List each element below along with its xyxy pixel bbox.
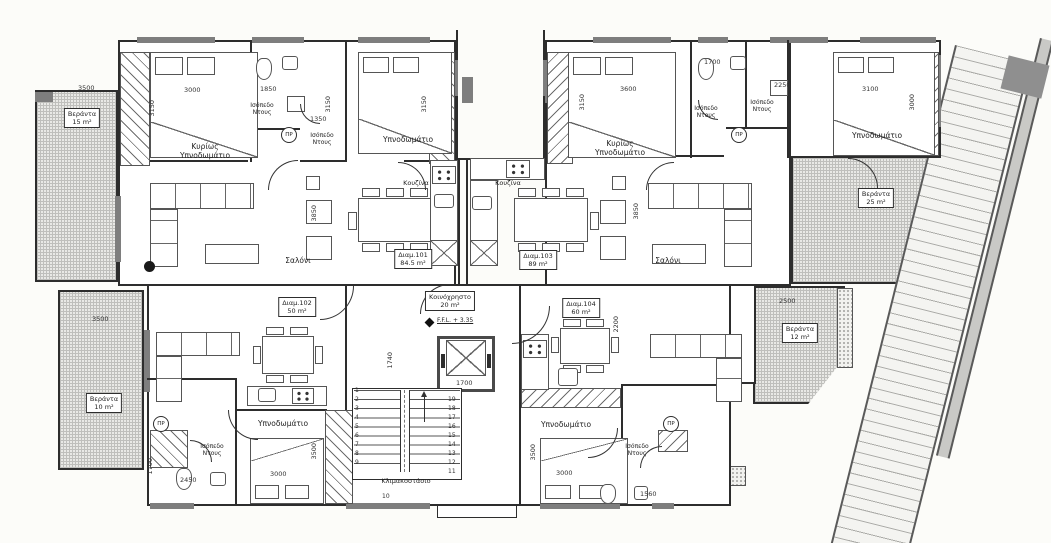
veranda-area: 25 m² — [862, 198, 890, 206]
room-label-bedroom-104: Υπνοδωμάτιο — [541, 421, 591, 430]
level-marker-label: F.F.L. + 3.35 — [437, 317, 473, 324]
dining-chair — [586, 319, 604, 327]
veranda-area: 12 m² — [786, 333, 814, 341]
window-bar — [860, 37, 936, 43]
dimension-label: 3150 — [420, 96, 428, 113]
stair-step-number: 3 — [355, 405, 365, 412]
pillow — [545, 485, 571, 499]
dimension-label: 3000 — [270, 470, 287, 478]
veranda-tag-top-left: Βεράντα 15 m² — [64, 108, 100, 128]
dimension-label: 3000 — [184, 86, 201, 94]
window-bar — [593, 37, 671, 43]
room-label-living-101: Σαλόνι — [285, 257, 310, 266]
stair-step-number: 11 — [448, 468, 458, 475]
shelf-102-bath — [150, 430, 188, 468]
staircase-label: Κλιμακοστάσιο — [381, 478, 430, 485]
dining-chair — [518, 188, 536, 197]
sofa-102-chaise — [156, 356, 182, 402]
pillow — [187, 57, 215, 75]
dining-chair — [611, 337, 619, 353]
room-label-bedroom-102: Υπνοδωμάτιο — [258, 420, 308, 429]
dimension-label: 1700 — [146, 458, 154, 475]
window-bar — [150, 503, 194, 509]
pr-shaft-103: ΠΡ — [731, 127, 747, 143]
dining-chair — [315, 346, 323, 364]
stove-104 — [523, 340, 547, 358]
apartment-name: Διαμ.102 — [282, 299, 312, 307]
boundary-block-top-left — [35, 92, 53, 102]
window-bar — [652, 503, 674, 509]
stair-step-number: 1 — [355, 387, 365, 394]
stair-step-number: 12 — [448, 459, 458, 466]
wall-102-bedroom-left — [235, 378, 237, 506]
apartment-tag-102: Διαμ.102 50 m² — [278, 297, 316, 317]
apartment-name: Διαμ.101 — [398, 251, 428, 259]
dimension-label: 3000 — [908, 94, 916, 111]
room-label-shower-102: Ισόπεδο Ντους — [200, 444, 223, 458]
dimension-label: 3500 — [78, 84, 95, 92]
sofa-101-chaise — [150, 209, 178, 267]
stair-step-number: 9 — [355, 459, 365, 466]
veranda-tag-bottom-right: Βεράντα 12 m² — [782, 323, 818, 343]
window-bar — [770, 37, 828, 43]
dimension-label: 2250 — [774, 81, 791, 89]
toilet-104 — [600, 484, 616, 504]
basin-103 — [730, 56, 746, 70]
dining-chair — [253, 346, 261, 364]
apartment-tag-101: Διαμ.101 84.5 m² — [394, 249, 432, 269]
pillow — [285, 485, 309, 499]
veranda-name: Βεράντα — [786, 325, 814, 333]
wall-103-bath-right — [787, 40, 789, 158]
dimension-label: 3150 — [324, 96, 332, 113]
stair-step-number: 18 — [448, 405, 458, 412]
entry-landing — [437, 505, 517, 518]
pr-label: ΠΡ — [157, 421, 164, 427]
stove-103 — [506, 160, 530, 178]
stair-step-number: 16 — [448, 423, 458, 430]
toilet-101 — [256, 58, 272, 80]
wall-103-bath-mid — [745, 40, 747, 128]
dimension-label: 3850 — [632, 203, 640, 220]
sofa-104-chaise — [716, 358, 742, 402]
apartment-area: 60 m² — [566, 308, 596, 316]
apartment-tag-103: Διαμ.103 89 m² — [519, 250, 557, 270]
party-wall-left — [458, 158, 460, 286]
common-name: Κοινόχρηστο — [429, 293, 471, 301]
dining-table-101 — [358, 198, 432, 242]
kitchen-sink-103 — [472, 196, 492, 210]
dining-chair — [566, 243, 584, 252]
dimension-label: 3600 — [620, 85, 637, 93]
sofa-101 — [150, 183, 254, 209]
apartment-area: 84.5 m² — [398, 259, 428, 267]
stair-step-number: 8 — [355, 450, 365, 457]
stair-step-number: 7 — [355, 441, 365, 448]
window-bar — [137, 37, 215, 43]
apartment-area: 50 m² — [282, 307, 312, 315]
armchair-103 — [600, 200, 626, 224]
wall-103-bath-left — [690, 40, 692, 158]
sofa-102 — [156, 332, 240, 356]
stove-101 — [432, 166, 456, 184]
stair-step-number: 14 — [448, 441, 458, 448]
stair-step-number: 15 — [448, 432, 458, 439]
dimension-label: 2500 — [779, 297, 796, 305]
dimension-label: 1740 — [386, 352, 394, 369]
dimension-label: 2200 — [612, 316, 620, 333]
stair-landing-number: 10 — [382, 493, 392, 500]
kitchen-sink-102 — [258, 388, 276, 402]
basin-102 — [210, 472, 226, 486]
veranda-name: Βεράντα — [862, 190, 890, 198]
pr-label: ΠΡ — [285, 132, 292, 138]
stair-stringer — [400, 390, 410, 472]
dimension-label: 3500 — [92, 315, 109, 323]
kitchen-sink-104 — [558, 368, 578, 386]
dimension-label: 3000 — [556, 469, 573, 477]
recess-column-left — [462, 77, 473, 103]
apartment-name: Διαμ.104 — [566, 300, 596, 308]
dining-table-103 — [514, 198, 588, 242]
party-wall-right — [466, 158, 468, 286]
dimension-label: 3500 — [529, 444, 537, 461]
pr-shaft-104: ΠΡ — [663, 416, 679, 432]
dimension-label: 1350 — [310, 115, 327, 123]
veranda-area: 15 m² — [68, 118, 96, 126]
paved-strip-right — [837, 288, 853, 368]
room-label-shower-104: Ισόπεδο Ντους — [625, 444, 648, 458]
pr-label: ΠΡ — [735, 132, 742, 138]
dimension-label: 1850 — [260, 85, 277, 93]
room-label-kitchen-103: Κουζίνα — [495, 180, 521, 187]
armchair-103 — [600, 236, 626, 260]
basin-101 — [282, 56, 298, 70]
wall-101-bedrooms — [300, 160, 346, 162]
pillow — [605, 57, 633, 75]
dimension-label: 3150 — [148, 100, 156, 117]
dining-chair — [290, 375, 308, 383]
veranda-area: 10 m² — [90, 403, 118, 411]
coffee-table-101 — [205, 244, 259, 264]
dining-chair — [266, 375, 284, 383]
dimension-label: 3500 — [310, 443, 318, 460]
room-label-shower-103a: Ισόπεδο Ντους — [694, 106, 717, 120]
veranda-tag-top-right: Βεράντα 25 m² — [858, 188, 894, 208]
pillow — [255, 485, 279, 499]
pr-shaft-102: ΠΡ — [153, 416, 169, 432]
window-bar — [115, 196, 121, 262]
room-label-living-103: Σαλόνι — [655, 257, 680, 266]
room-label-shower-103b: Ισόπεδο Ντους — [750, 100, 773, 114]
pillow — [155, 57, 183, 75]
pr-label: ΠΡ — [667, 421, 674, 427]
dining-chair — [566, 188, 584, 197]
apartment-name: Διαμ.103 — [523, 252, 553, 260]
dining-chair — [586, 365, 604, 373]
shelf-104-bath — [658, 430, 688, 452]
room-label-shower-101a: Ισόπεδο Ντους — [250, 103, 273, 117]
pillow — [363, 57, 389, 73]
window-bar — [144, 330, 150, 392]
room-label-bedroom-103: Υπνοδωμάτιο — [852, 132, 902, 141]
dining-table-104 — [560, 328, 610, 364]
veranda-name: Βεράντα — [90, 395, 118, 403]
stair-step-number: 2 — [355, 396, 365, 403]
dining-chair — [290, 327, 308, 335]
pillow — [573, 57, 601, 75]
room-label-master-bedroom-103: Κυρίως Υπνοδωμάτιο — [595, 140, 645, 157]
dining-chair — [563, 319, 581, 327]
wall-104-bath-top — [621, 384, 731, 386]
column-round — [144, 261, 155, 272]
dining-chair — [542, 188, 560, 197]
pillow — [868, 57, 894, 73]
wall-103-bedrooms — [668, 155, 724, 157]
dimension-label: 3150 — [578, 94, 586, 111]
kitchen-sink-101 — [434, 194, 454, 208]
floor-plan-canvas: ΠΡ ΠΡ ΠΡ ΠΡ 1 2 3 4 5 6 7 8 9 19 18 17 1… — [0, 0, 1051, 543]
stair-stringer-dash — [404, 390, 405, 472]
veranda-tag-bottom-left: Βεράντα 10 m² — [86, 393, 122, 413]
sofa-103-chaise — [724, 209, 752, 267]
stair-step-number: 5 — [355, 423, 365, 430]
dimension-label: 1700 — [704, 58, 721, 66]
wall-101-bath-right — [345, 40, 347, 162]
pr-shaft-101: ΠΡ — [281, 127, 297, 143]
dining-chair — [266, 327, 284, 335]
dimension-label: 1560 — [640, 490, 657, 498]
kitchen-cabinet-103 — [470, 240, 498, 266]
elevator-rail — [487, 354, 491, 368]
pillow — [393, 57, 419, 73]
dimension-label: 3100 — [862, 85, 879, 93]
dining-chair — [362, 188, 380, 197]
stove-102 — [292, 388, 314, 404]
window-bar — [698, 37, 728, 43]
apartment-area: 89 m² — [523, 260, 553, 268]
dimension-label: 2450 — [180, 476, 197, 484]
room-label-kitchen-101: Κουζίνα — [403, 180, 429, 187]
dining-chair — [551, 337, 559, 353]
veranda-bottom-right — [753, 286, 845, 404]
room-label-bedroom-101: Υπνοδωμάτιο — [383, 136, 433, 145]
stair-step-number: 13 — [448, 450, 458, 457]
dining-chair — [348, 212, 357, 230]
window-bar — [346, 503, 430, 509]
stair-step-number: 17 — [448, 414, 458, 421]
room-label-master-bedroom-101: Κυρίως Υπνοδωμάτιο — [180, 143, 230, 160]
side-table-101 — [306, 176, 320, 190]
wardrobe-102 — [325, 410, 353, 504]
dimension-label: 3850 — [310, 205, 318, 222]
veranda-name: Βεράντα — [68, 110, 96, 118]
wardrobe-104 — [521, 388, 621, 408]
stair-step-number: 19 — [448, 396, 458, 403]
elevator-rail — [441, 354, 445, 368]
window-bar — [358, 37, 430, 43]
common-area: 20 m² — [429, 301, 471, 309]
stair-step-number: 4 — [355, 414, 365, 421]
stair-direction-arrow — [421, 391, 427, 397]
dining-table-102 — [262, 336, 314, 374]
wardrobe-101-left — [120, 52, 150, 166]
elevator-car — [446, 340, 486, 376]
dimension-label: 1700 — [456, 379, 473, 387]
dining-chair — [362, 243, 380, 252]
dining-chair — [590, 212, 599, 230]
window-bar — [252, 37, 304, 43]
side-table-103 — [612, 176, 626, 190]
stair-step-number: 6 — [355, 432, 365, 439]
room-label-shower-101b: Ισόπεδο Ντους — [310, 133, 333, 147]
pillow — [838, 57, 864, 73]
apartment-tag-104: Διαμ.104 60 m² — [562, 298, 600, 318]
kitchen-cabinet-101 — [430, 240, 458, 266]
common-area-tag: Κοινόχρηστο 20 m² — [425, 291, 475, 311]
stair-direction-line — [424, 396, 425, 422]
sofa-104 — [650, 334, 742, 358]
